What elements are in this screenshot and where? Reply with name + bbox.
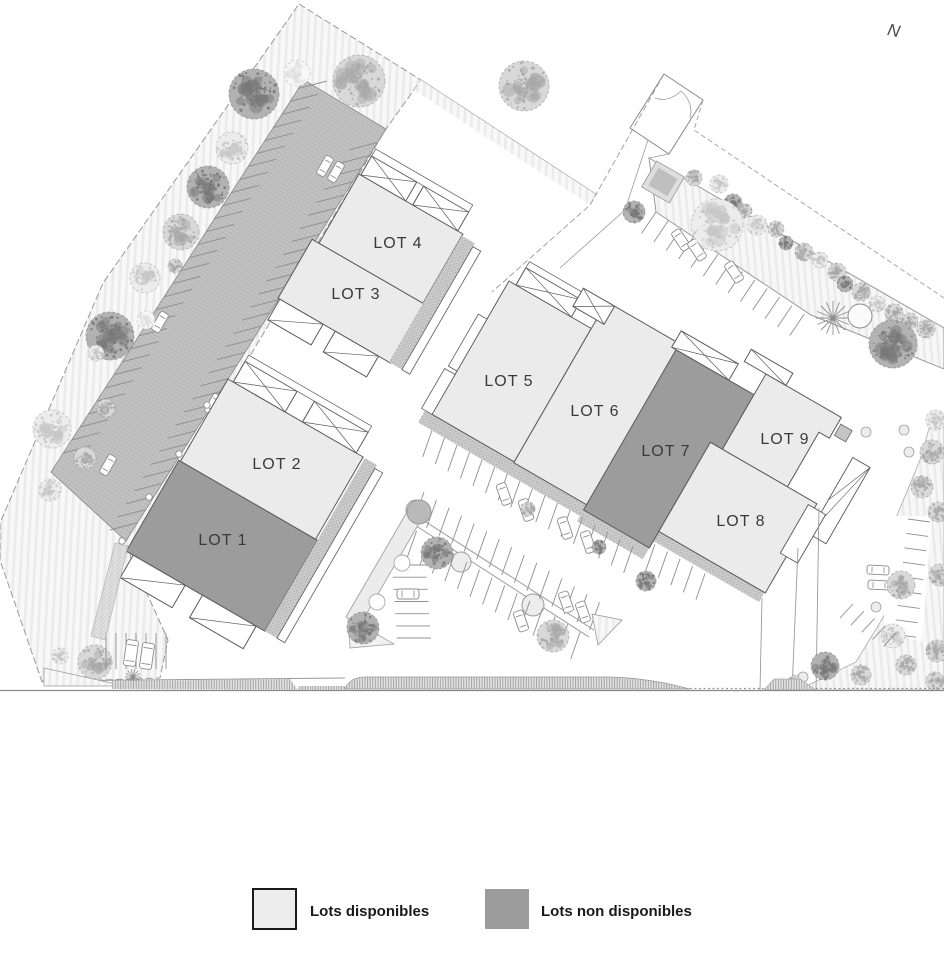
svg-text:Lots disponibles: Lots disponibles xyxy=(310,903,429,920)
svg-text:LOT 4: LOT 4 xyxy=(373,235,422,252)
svg-text:LOT 9: LOT 9 xyxy=(760,431,809,448)
svg-text:LOT 5: LOT 5 xyxy=(484,373,533,390)
svg-text:LOT 3: LOT 3 xyxy=(331,286,380,303)
svg-text:LOT 7: LOT 7 xyxy=(641,443,690,460)
svg-text:LOT 1: LOT 1 xyxy=(198,532,247,549)
svg-text:LOT 2: LOT 2 xyxy=(252,456,301,473)
svg-text:LOT 8: LOT 8 xyxy=(716,513,765,530)
svg-text:Lots non disponibles: Lots non disponibles xyxy=(541,903,692,920)
svg-text:LOT 6: LOT 6 xyxy=(570,403,619,420)
